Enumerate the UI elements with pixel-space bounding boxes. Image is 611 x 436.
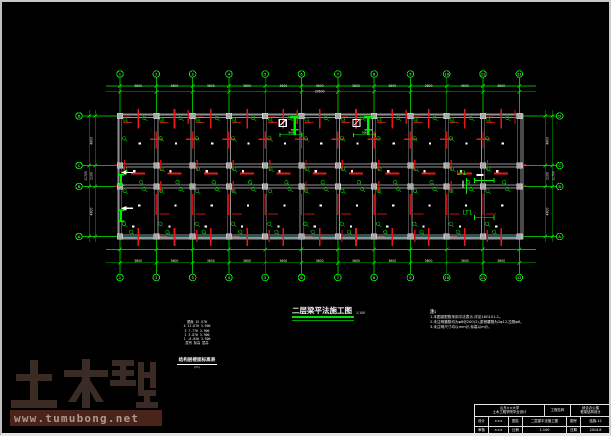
watermark-logo [10, 358, 162, 410]
svg-text:4: 4 [228, 276, 230, 280]
svg-text:3600: 3600 [279, 259, 287, 263]
titleblock-cell: 日期 [567, 427, 581, 436]
titleblock-cell: 工程名称 [545, 405, 571, 417]
svg-text:11700: 11700 [84, 171, 88, 181]
svg-text:3600: 3600 [352, 259, 360, 263]
svg-text:12: 12 [517, 72, 521, 76]
svg-text:3600: 3600 [316, 259, 324, 263]
svg-text:2100: 2100 [546, 172, 550, 180]
titleblock-cell: 山东××大学土木工程学院毕业设计 [475, 405, 545, 417]
svg-text:LT1: LT1 [463, 210, 473, 217]
general-notes: 注: 1.本图梁配筋采用平法表示,详见16G101-1。 2.未注明箍筋均为φ8… [430, 310, 550, 329]
titleblock-cell: 二层梁平法施工图 [523, 417, 567, 427]
titleblock-cell: 2014.6 [581, 427, 611, 436]
svg-text:11: 11 [481, 72, 485, 76]
svg-text:2: 2 [155, 72, 157, 76]
svg-text:4800: 4800 [546, 208, 550, 216]
svg-text:8: 8 [373, 72, 375, 76]
svg-text:900: 900 [362, 130, 367, 134]
svg-text:10: 10 [445, 276, 449, 280]
watermark-glyph-stroke [110, 380, 136, 386]
svg-text:3600: 3600 [243, 259, 251, 263]
svg-text:3600: 3600 [207, 259, 215, 263]
svg-text:6: 6 [300, 72, 302, 76]
svg-text:2100: 2100 [90, 172, 94, 180]
svg-text:3600: 3600 [388, 259, 396, 263]
titleblock-cell: 图名 [509, 417, 523, 427]
svg-text:3600: 3600 [134, 259, 142, 263]
svg-text:8: 8 [373, 276, 375, 280]
svg-text:3600: 3600 [243, 84, 251, 88]
titleblock-cell: 1:100 [523, 427, 567, 436]
watermark-glyph-stroke [16, 374, 52, 381]
svg-text:3600: 3600 [134, 84, 142, 88]
svg-text:LT1: LT1 [457, 170, 467, 177]
svg-text:3600: 3600 [425, 84, 433, 88]
svg-text:3600: 3600 [352, 84, 360, 88]
svg-text:1: 1 [119, 276, 121, 280]
svg-text:3: 3 [192, 276, 194, 280]
svg-text:D: D [558, 114, 561, 118]
svg-text:9: 9 [409, 72, 411, 76]
svg-text:12: 12 [517, 276, 521, 280]
svg-text:4: 4 [228, 72, 230, 76]
svg-text:3600: 3600 [461, 84, 469, 88]
titleblock-cell: 综合办公楼框架结构设计 [571, 405, 611, 417]
svg-text:4800: 4800 [90, 137, 94, 145]
svg-text:3600: 3600 [388, 84, 396, 88]
svg-text:D: D [78, 114, 81, 118]
svg-text:4800: 4800 [546, 137, 550, 145]
svg-text:6: 6 [300, 276, 302, 280]
svg-text:4800: 4800 [90, 208, 94, 216]
svg-text:7: 7 [337, 72, 339, 76]
elevation-table-caption: 结构层楼面标高表 [177, 358, 218, 365]
watermark-glyph-stroke [136, 402, 158, 408]
svg-text:39600: 39600 [315, 89, 325, 93]
elevation-table-unit: (m) [169, 365, 225, 369]
svg-text:1: 1 [119, 72, 121, 76]
titleblock-cell: 比例 [509, 427, 523, 436]
elevation-table-row: 层号 标高 层高 [169, 341, 225, 345]
note-line: 3.未注明尺寸均以mm计,标高以m计。 [430, 325, 550, 330]
title-block: 山东××大学土木工程学院毕业设计工程名称综合办公楼框架结构设计设计×××图名二层… [474, 404, 610, 435]
svg-text:3600: 3600 [171, 259, 179, 263]
svg-text:3600: 3600 [171, 84, 179, 88]
svg-text:3: 3 [192, 72, 194, 76]
titleblock-cell: ××× [489, 427, 509, 436]
svg-text:3600: 3600 [461, 259, 469, 263]
stair-labels: LT1LT1 [457, 170, 495, 220]
svg-text:3600: 3600 [316, 84, 324, 88]
drawing-scale: 1:100 [356, 311, 365, 315]
watermark-glyph-stroke [11, 400, 57, 408]
titleblock-cell: 图号 [567, 417, 581, 427]
svg-text:9: 9 [409, 276, 411, 280]
titleblock-cell: ××× [489, 417, 509, 427]
elevation-table: 屋面 15.5704 11.670 3.9003 7.770 3.9002 3.… [169, 320, 225, 369]
cad-viewer-canvas: 112233445566778899101011111212DDCCBBAA36… [0, 0, 611, 436]
svg-text:3600: 3600 [425, 259, 433, 263]
titleblock-cell: 设计 [475, 417, 489, 427]
watermark-url-bar: www.tumubong.net [10, 410, 162, 426]
svg-text:7: 7 [337, 276, 339, 280]
watermark-glyph-stroke [120, 360, 126, 380]
svg-text:10: 10 [445, 72, 449, 76]
watermark-glyph-stroke [138, 372, 156, 378]
titleblock-cell: 审核 [475, 427, 489, 436]
rebar-marks [115, 109, 527, 246]
svg-text:11700: 11700 [551, 171, 555, 181]
svg-text:5: 5 [264, 276, 266, 280]
svg-text:3600: 3600 [497, 259, 505, 263]
title-underline-thin [292, 320, 354, 321]
svg-text:2: 2 [155, 276, 157, 280]
svg-text:5: 5 [264, 72, 266, 76]
svg-text:3600: 3600 [279, 84, 287, 88]
watermark-url: www.tumubong.net [10, 412, 139, 425]
svg-text:11: 11 [481, 276, 485, 280]
title-underline [292, 316, 354, 318]
titleblock-cell: 结施-12 [581, 417, 611, 427]
svg-text:3600: 3600 [497, 84, 505, 88]
svg-text:900: 900 [288, 130, 293, 134]
svg-text:3600: 3600 [207, 84, 215, 88]
drawing-title-block: 二层梁平法施工图 1:100 [292, 307, 367, 321]
